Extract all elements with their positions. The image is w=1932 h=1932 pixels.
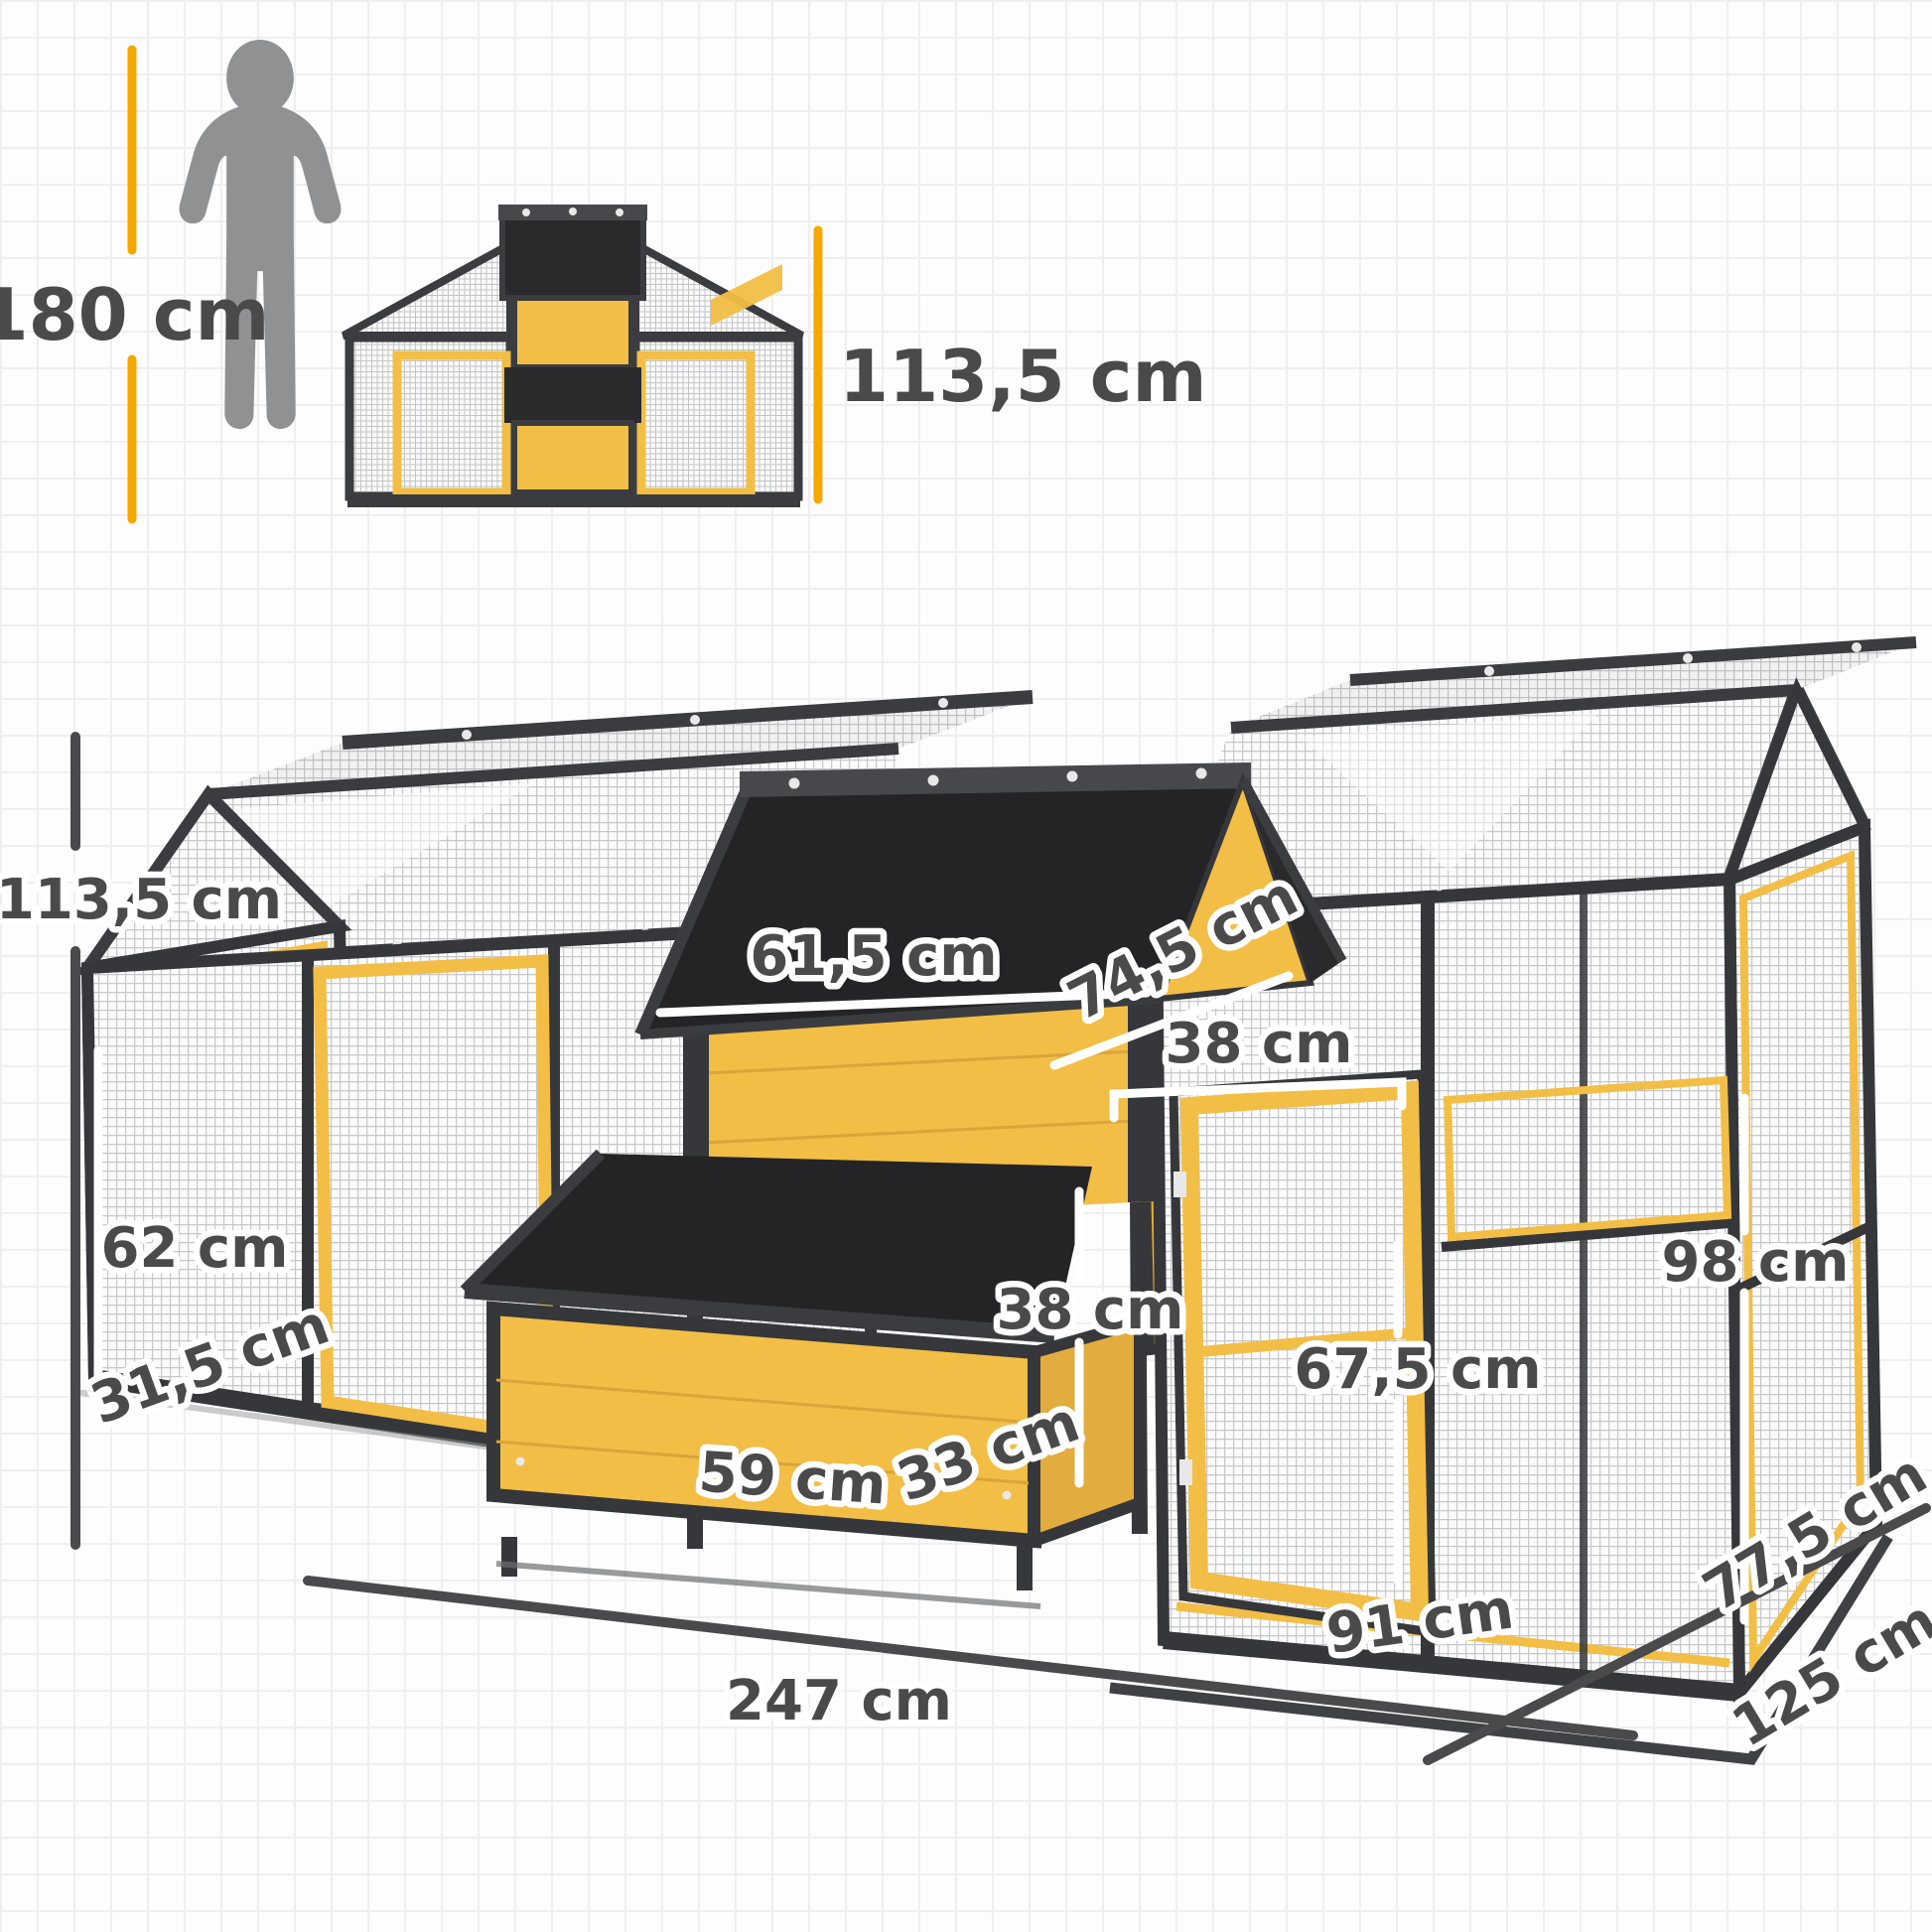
mini-left-roof — [344, 244, 510, 336]
human-silhouette — [180, 40, 342, 429]
main-coop-render — [74, 642, 1916, 1759]
mini-house-roof — [502, 212, 643, 298]
door-hinge-top — [1173, 1172, 1186, 1197]
mini-base-bar — [347, 494, 800, 507]
total-width-label: 247 cm — [726, 1669, 952, 1733]
human-height-label: 180 cm — [0, 273, 270, 356]
mini-coop-front-view — [344, 205, 802, 507]
nest-leg-left — [501, 1537, 517, 1577]
nest-width-label: 59 cm — [697, 1441, 889, 1518]
nest-height-label: 38 cm — [997, 1278, 1184, 1342]
diagram-canvas: 180 cm 113,5 cm — [0, 0, 1932, 1932]
house-door-width-label: 38 cm — [1166, 1012, 1353, 1076]
mini-right-door — [641, 355, 751, 492]
house-width-label: 61,5 cm — [750, 924, 997, 989]
nest-box — [465, 1154, 1140, 1606]
product-dimension-diagram: 180 cm 113,5 cm — [0, 0, 1932, 1932]
mini-coop-height-label: 113,5 cm — [839, 335, 1207, 418]
scale-figure: 180 cm 113,5 cm — [0, 40, 1207, 519]
mini-nest-roof — [504, 367, 641, 423]
nest-ground-line — [496, 1564, 1040, 1606]
mini-house-wall — [514, 298, 631, 367]
total-height-label: 113,5 cm — [0, 868, 282, 932]
front-panel-height-label: 62 cm — [101, 1216, 289, 1281]
run-door-height-label: 67,5 cm — [1294, 1337, 1541, 1402]
mini-left-door — [397, 355, 506, 492]
run-wall-height-label: 98 cm — [1662, 1230, 1850, 1295]
door-hinge-bottom — [1179, 1459, 1192, 1485]
right-run-front-face — [1157, 880, 1739, 1693]
mini-nest-wall — [514, 423, 631, 492]
